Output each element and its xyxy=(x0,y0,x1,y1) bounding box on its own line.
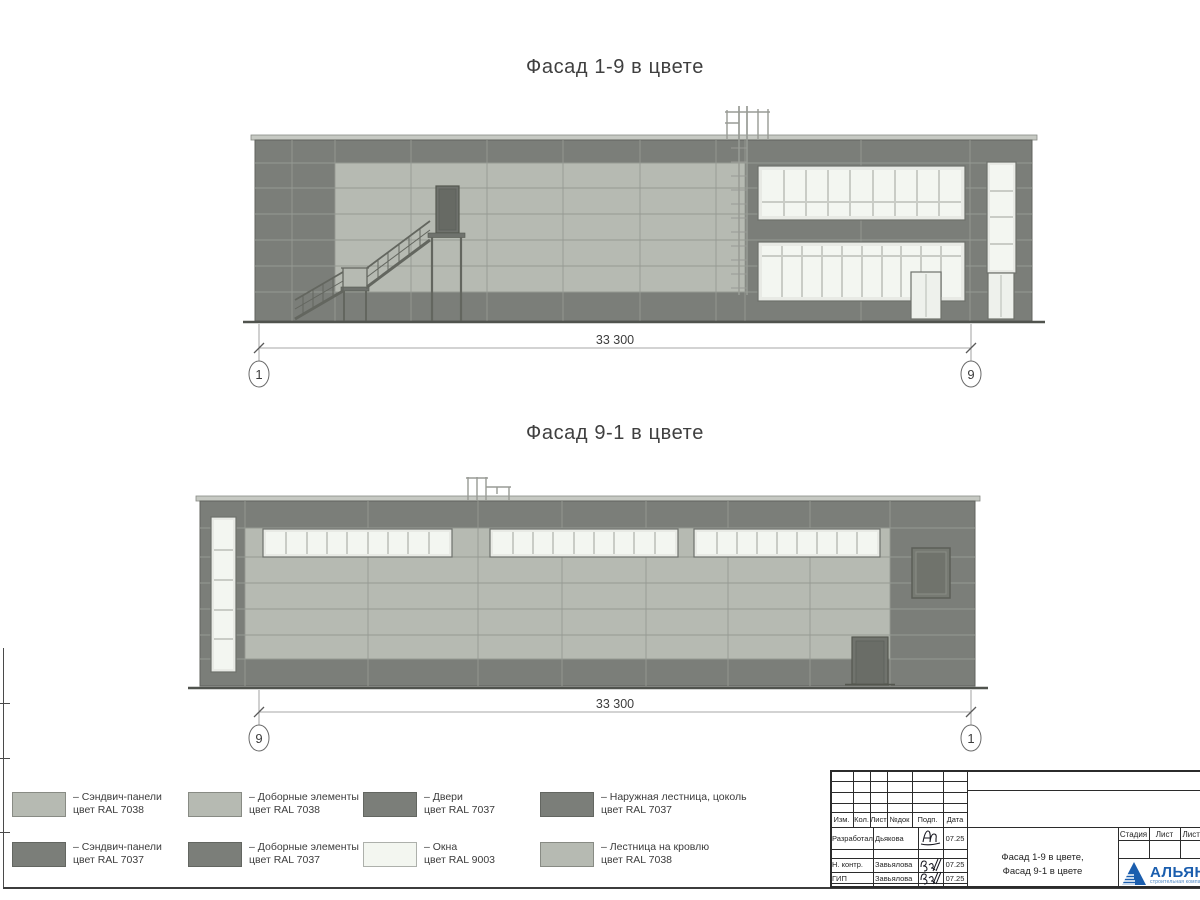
tb-header-ndok: №док xyxy=(887,815,912,824)
rear-door xyxy=(845,637,895,685)
drawing-sheet: Фасад 1-9 в цвете Фасад 9-1 в цвете xyxy=(0,0,1200,900)
legend-label: – Наружная лестница, цоколь xyxy=(601,791,747,804)
doc-title-line2: Фасад 9-1 в цвете xyxy=(967,866,1118,877)
axis-marker-1: 1 xyxy=(249,361,269,387)
legend-ral: цвет RAL 7037 xyxy=(601,804,747,817)
tb-header-izm: Изм. xyxy=(830,815,853,824)
legend-label: – Лестница на кровлю xyxy=(601,841,709,854)
tb-role: ГИП xyxy=(832,874,847,883)
frame-tick xyxy=(0,758,10,759)
dimension-33300: 33 300 xyxy=(254,324,976,362)
color-swatch xyxy=(363,792,417,817)
roof-cap xyxy=(196,496,980,501)
window-strip-left xyxy=(211,517,236,672)
dimension-33300: 33 300 xyxy=(254,690,976,727)
logo-subtitle: строительная компания xyxy=(1150,879,1200,885)
legend-ral: цвет RAL 7037 xyxy=(73,854,162,867)
legend-label: – Окна xyxy=(424,841,495,854)
facade-2-drawing: 33 300 9 1 xyxy=(145,460,1045,760)
entrance-door xyxy=(911,272,941,319)
logo-triangle-icon xyxy=(1122,862,1146,885)
facade-2-title: Фасад 9-1 в цвете xyxy=(415,422,815,445)
svg-text:1: 1 xyxy=(967,731,974,746)
signature xyxy=(919,828,943,848)
legend-label: – Сэндвич-панели xyxy=(73,791,162,804)
svg-text:9: 9 xyxy=(967,367,974,382)
legend-ral: цвет RAL 7038 xyxy=(249,804,359,817)
tb-name: Дьякова xyxy=(875,834,904,843)
color-swatch xyxy=(363,842,417,867)
color-swatch xyxy=(188,792,242,817)
louver-panel xyxy=(912,548,950,598)
tb-role: Разработал xyxy=(832,834,873,843)
tb-date: 07.25 xyxy=(943,860,967,869)
title-block: Изм. Кол. Лист №док Подп. Дата Разработа… xyxy=(830,770,1200,888)
tb-date: 07.25 xyxy=(943,874,967,883)
tb-sheets-label: Листов xyxy=(1180,830,1200,839)
tb-name: Завьялова xyxy=(875,874,912,883)
legend-ral: цвет RAL 9003 xyxy=(424,854,495,867)
tb-stage-label: Стадия xyxy=(1118,830,1149,839)
signature xyxy=(919,871,943,885)
wall-light-panels xyxy=(335,163,745,292)
svg-text:1: 1 xyxy=(255,367,262,382)
ribbon-window-upper xyxy=(758,166,965,220)
legend-ral: цвет RAL 7038 xyxy=(601,854,709,867)
color-swatch xyxy=(12,842,66,867)
tb-date: 07.25 xyxy=(943,834,967,843)
frame-tick xyxy=(0,832,10,833)
axis-marker-9: 9 xyxy=(249,725,269,751)
side-door xyxy=(988,273,1014,319)
tb-role: Н. контр. xyxy=(832,860,863,869)
stair-landing xyxy=(341,287,369,291)
signature xyxy=(919,858,943,872)
svg-text:9: 9 xyxy=(255,731,262,746)
tb-sheet-label: Лист xyxy=(1149,830,1180,839)
legend-label: – Сэндвич-панели xyxy=(73,841,162,854)
legend-ral: цвет RAL 7038 xyxy=(73,804,162,817)
window-strip-right xyxy=(987,162,1016,273)
stair-platform xyxy=(428,233,465,238)
ribbon-window-a xyxy=(263,529,452,557)
axis-marker-1: 1 xyxy=(961,725,981,751)
tb-header-data: Дата xyxy=(943,815,967,824)
facade-1-drawing: 33 300 1 9 xyxy=(200,90,1060,400)
dimension-text: 33 300 xyxy=(596,697,634,711)
sheet-frame-left xyxy=(3,648,4,888)
color-swatch xyxy=(540,792,594,817)
tb-header-list: Лист xyxy=(870,815,887,824)
color-swatch xyxy=(540,842,594,867)
doc-title-line1: Фасад 1-9 в цвете, xyxy=(967,852,1118,863)
legend-ral: цвет RAL 7037 xyxy=(424,804,495,817)
dimension-text: 33 300 xyxy=(596,333,634,347)
legend-label: – Двери xyxy=(424,791,495,804)
legend-label: – Доборные элементы xyxy=(249,791,359,804)
tb-name: Завьялова xyxy=(875,860,912,869)
axis-marker-9: 9 xyxy=(961,361,981,387)
color-swatch xyxy=(188,842,242,867)
tb-header-kol: Кол. xyxy=(853,815,870,824)
frame-tick xyxy=(0,703,10,704)
color-swatch xyxy=(12,792,66,817)
ribbon-window-b xyxy=(490,529,678,557)
roof-cap xyxy=(251,135,1037,140)
tb-header-podp: Подп. xyxy=(912,815,943,824)
ribbon-window-c xyxy=(694,529,880,557)
legend-label: – Доборные элементы xyxy=(249,841,359,854)
facade-1-title: Фасад 1-9 в цвете xyxy=(415,56,815,79)
legend-ral: цвет RAL 7037 xyxy=(249,854,359,867)
